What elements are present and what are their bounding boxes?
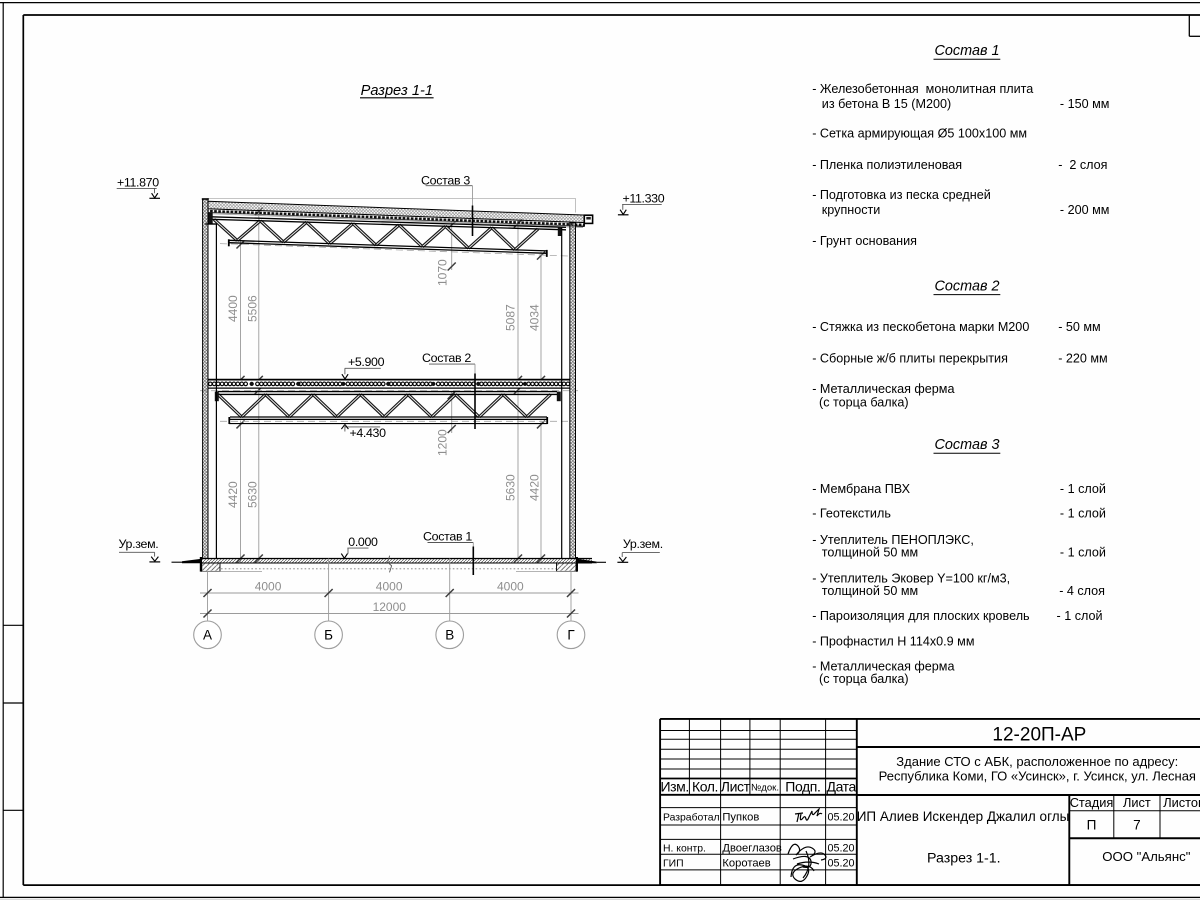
svg-text:Изм.: Изм. (660, 779, 688, 795)
svg-text:толщиной 50 мм: толщиной 50 мм (822, 584, 918, 598)
svg-text:крупности: крупности (822, 203, 881, 217)
svg-text:Состав 3: Состав 3 (935, 437, 1000, 453)
svg-text:- 2 слоя: - 2 слоя (1058, 158, 1107, 172)
svg-text:Состав 2: Состав 2 (422, 351, 471, 365)
svg-text:Коротаев: Коротаев (722, 857, 770, 869)
svg-text:- Геотекстиль: - Геотекстиль (812, 507, 891, 521)
svg-text:5087: 5087 (504, 304, 518, 331)
svg-text:Листов: Листов (1163, 795, 1200, 810)
svg-text:Н. контр.: Н. контр. (663, 843, 706, 854)
svg-text:- 1 слой: - 1 слой (1057, 609, 1103, 623)
svg-text:- 1 слой: - 1 слой (1060, 546, 1106, 560)
svg-text:Здание СТО с АБК, расположенно: Здание СТО с АБК, расположенное по адрес… (896, 754, 1178, 769)
svg-text:4000: 4000 (497, 579, 524, 593)
svg-text:В: В (445, 628, 454, 643)
svg-text:05.20: 05.20 (827, 842, 854, 854)
svg-text:4400: 4400 (226, 295, 240, 322)
svg-text:- 50 мм: - 50 мм (1058, 320, 1101, 334)
svg-text:Лист: Лист (1123, 795, 1151, 810)
svg-text:(с торца балка): (с торца балка) (819, 672, 909, 686)
svg-text:- Сборные ж/б плиты перекрытия: - Сборные ж/б плиты перекрытия (812, 351, 1008, 365)
svg-text:+11.870: +11.870 (117, 176, 159, 190)
svg-text:+5.900: +5.900 (348, 355, 385, 369)
svg-text:- Сетка армирующая Ø5 100х100: - Сетка армирующая Ø5 100х100 мм (812, 126, 1027, 140)
svg-text:- 150 мм: - 150 мм (1060, 97, 1110, 111)
svg-text:4000: 4000 (376, 579, 403, 593)
svg-text:0.000: 0.000 (348, 535, 378, 549)
svg-text:А: А (203, 628, 212, 643)
svg-text:4420: 4420 (226, 481, 240, 508)
svg-text:ИП Алиев Искендер Джалил оглы: ИП Алиев Искендер Джалил оглы (857, 809, 1070, 824)
svg-text:Состав 3: Состав 3 (421, 173, 470, 187)
svg-text:- 1 слой: - 1 слой (1060, 507, 1106, 521)
svg-text:(с торца балка): (с торца балка) (819, 395, 909, 409)
svg-text:1200: 1200 (436, 429, 450, 456)
svg-text:П: П (1087, 818, 1097, 833)
svg-text:- Грунт основания: - Грунт основания (812, 234, 917, 248)
svg-text:Пупков: Пупков (722, 812, 759, 824)
svg-text:- 4 слоя: - 4 слоя (1059, 584, 1105, 598)
svg-text:12-20П-АР: 12-20П-АР (992, 725, 1086, 746)
svg-text:- Мембрана ПВХ: - Мембрана ПВХ (812, 482, 910, 496)
svg-text:Республика Коми, ГО «Усинск»,: Республика Коми, ГО «Усинск», г. Усинск,… (879, 769, 1196, 784)
svg-text:Разрез 1-1: Разрез 1-1 (361, 83, 433, 99)
svg-text:- Металлическая ферма: - Металлическая ферма (812, 382, 954, 396)
svg-text:7: 7 (1133, 818, 1141, 833)
svg-text:12000: 12000 (373, 600, 407, 614)
svg-text:- 200 мм: - 200 мм (1060, 203, 1110, 217)
svg-text:из бетона В 15 (М200): из бетона В 15 (М200) (822, 97, 951, 111)
svg-text:- 220 мм: - 220 мм (1058, 351, 1108, 365)
svg-text:ООО "Альянс": ООО "Альянс" (1102, 849, 1190, 864)
svg-text:05.20: 05.20 (827, 857, 854, 869)
svg-text:05.20: 05.20 (827, 812, 854, 824)
svg-text:+4.430: +4.430 (350, 426, 387, 440)
svg-text:Дата: Дата (826, 779, 856, 795)
svg-text:- Подготовка из песка средней: - Подготовка из песка средней (812, 188, 991, 202)
svg-text:Двоеглазов: Двоеглазов (722, 842, 782, 854)
svg-text:5630: 5630 (504, 474, 518, 501)
svg-text:- Профнастил Н 114х0.9 мм: - Профнастил Н 114х0.9 мм (812, 635, 974, 649)
svg-text:Состав 1: Состав 1 (423, 530, 472, 544)
svg-text:Подп.: Подп. (785, 779, 820, 795)
svg-text:Стадия: Стадия (1070, 795, 1114, 810)
svg-text:5630: 5630 (246, 481, 260, 508)
svg-text:+11.330: +11.330 (623, 191, 665, 205)
svg-text:- Пароизоляция для плоских кро: - Пароизоляция для плоских кровель (812, 609, 1030, 623)
svg-text:Г: Г (567, 628, 575, 643)
svg-text:Состав 1: Состав 1 (935, 43, 1000, 59)
svg-text:- Пленка полиэтиленовая: - Пленка полиэтиленовая (812, 158, 962, 172)
svg-text:1070: 1070 (436, 259, 450, 286)
svg-text:4000: 4000 (255, 579, 282, 593)
svg-text:ГИП: ГИП (663, 858, 684, 869)
svg-text:№док.: №док. (751, 783, 779, 794)
svg-text:5506: 5506 (246, 295, 260, 322)
svg-text:Ур.зем.: Ур.зем. (119, 537, 159, 551)
svg-text:Кол.: Кол. (692, 779, 718, 795)
svg-text:- Стяжка из пескобетона марки: - Стяжка из пескобетона марки М200 (812, 320, 1029, 334)
svg-text:Лист: Лист (721, 779, 751, 795)
svg-text:4420: 4420 (528, 474, 542, 501)
svg-text:Б: Б (324, 628, 333, 643)
svg-text:- Железобетонная монолитная п: - Железобетонная монолитная плита (812, 82, 1033, 96)
svg-text:толщиной 50 мм: толщиной 50 мм (822, 546, 918, 560)
svg-text:Разрез 1-1.: Разрез 1-1. (927, 851, 1001, 867)
svg-text:Ур.зем.: Ур.зем. (623, 537, 663, 551)
svg-text:4034: 4034 (528, 304, 542, 331)
svg-text:Состав 2: Состав 2 (935, 278, 1000, 294)
svg-text:- 1 слой: - 1 слой (1060, 482, 1106, 496)
svg-text:Разработал: Разработал (663, 812, 720, 824)
